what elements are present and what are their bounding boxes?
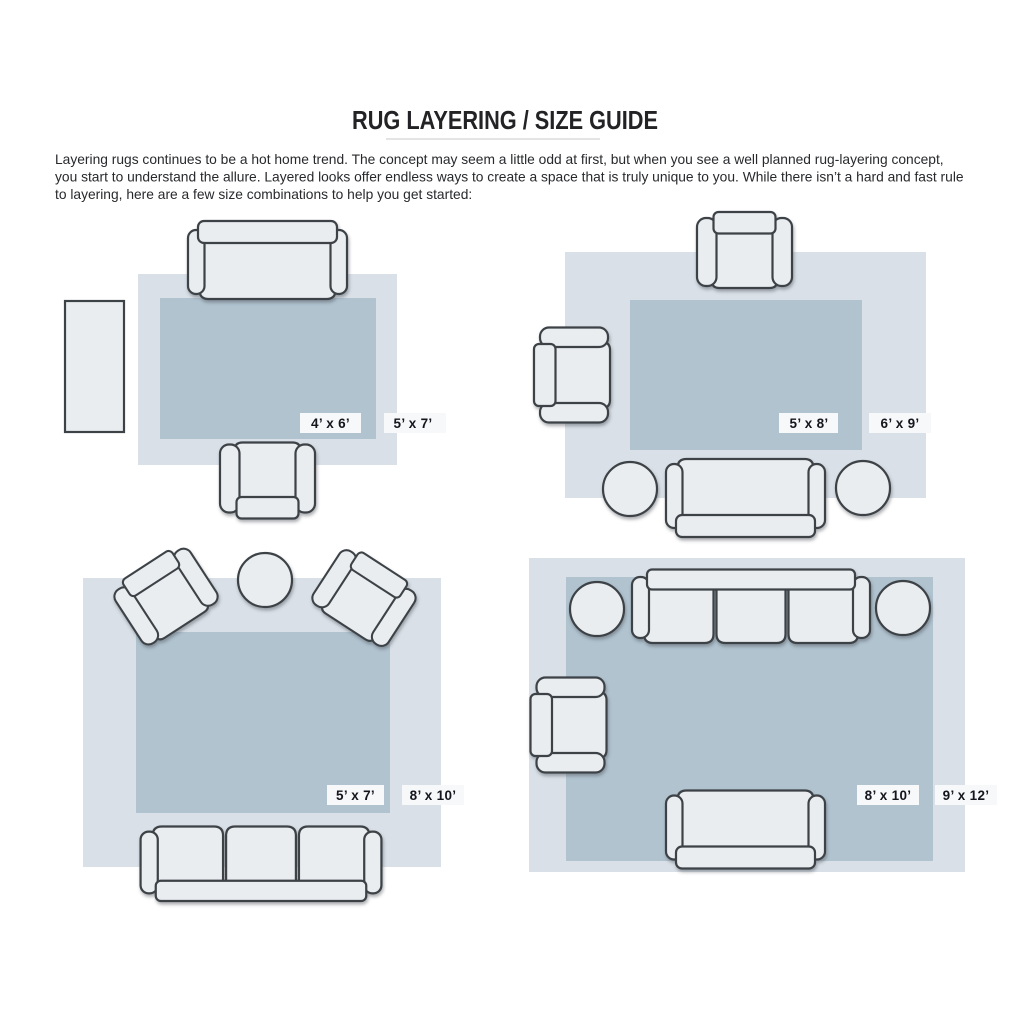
svg-text:8’ x 10’: 8’ x 10’ xyxy=(410,788,457,803)
svg-text:to layering, here are a few si: to layering, here are a few size combina… xyxy=(55,187,472,202)
svg-text:5’ x 8’: 5’ x 8’ xyxy=(790,416,829,431)
svg-text:6’ x 9’: 6’ x 9’ xyxy=(881,416,920,431)
svg-text:8’ x 10’: 8’ x 10’ xyxy=(865,788,912,803)
svg-text:Layering rugs continues to be: Layering rugs continues to be a hot home… xyxy=(55,152,944,167)
svg-text:5’ x 7’: 5’ x 7’ xyxy=(394,416,433,431)
svg-text:you start to understand the al: you start to understand the allure. Laye… xyxy=(55,170,964,185)
svg-text:9’ x 12’: 9’ x 12’ xyxy=(943,788,990,803)
svg-text:5’ x 7’: 5’ x 7’ xyxy=(336,788,375,803)
svg-text:4’ x 6’: 4’ x 6’ xyxy=(311,416,350,431)
svg-text:RUG LAYERING / SIZE GUIDE: RUG LAYERING / SIZE GUIDE xyxy=(352,107,658,135)
